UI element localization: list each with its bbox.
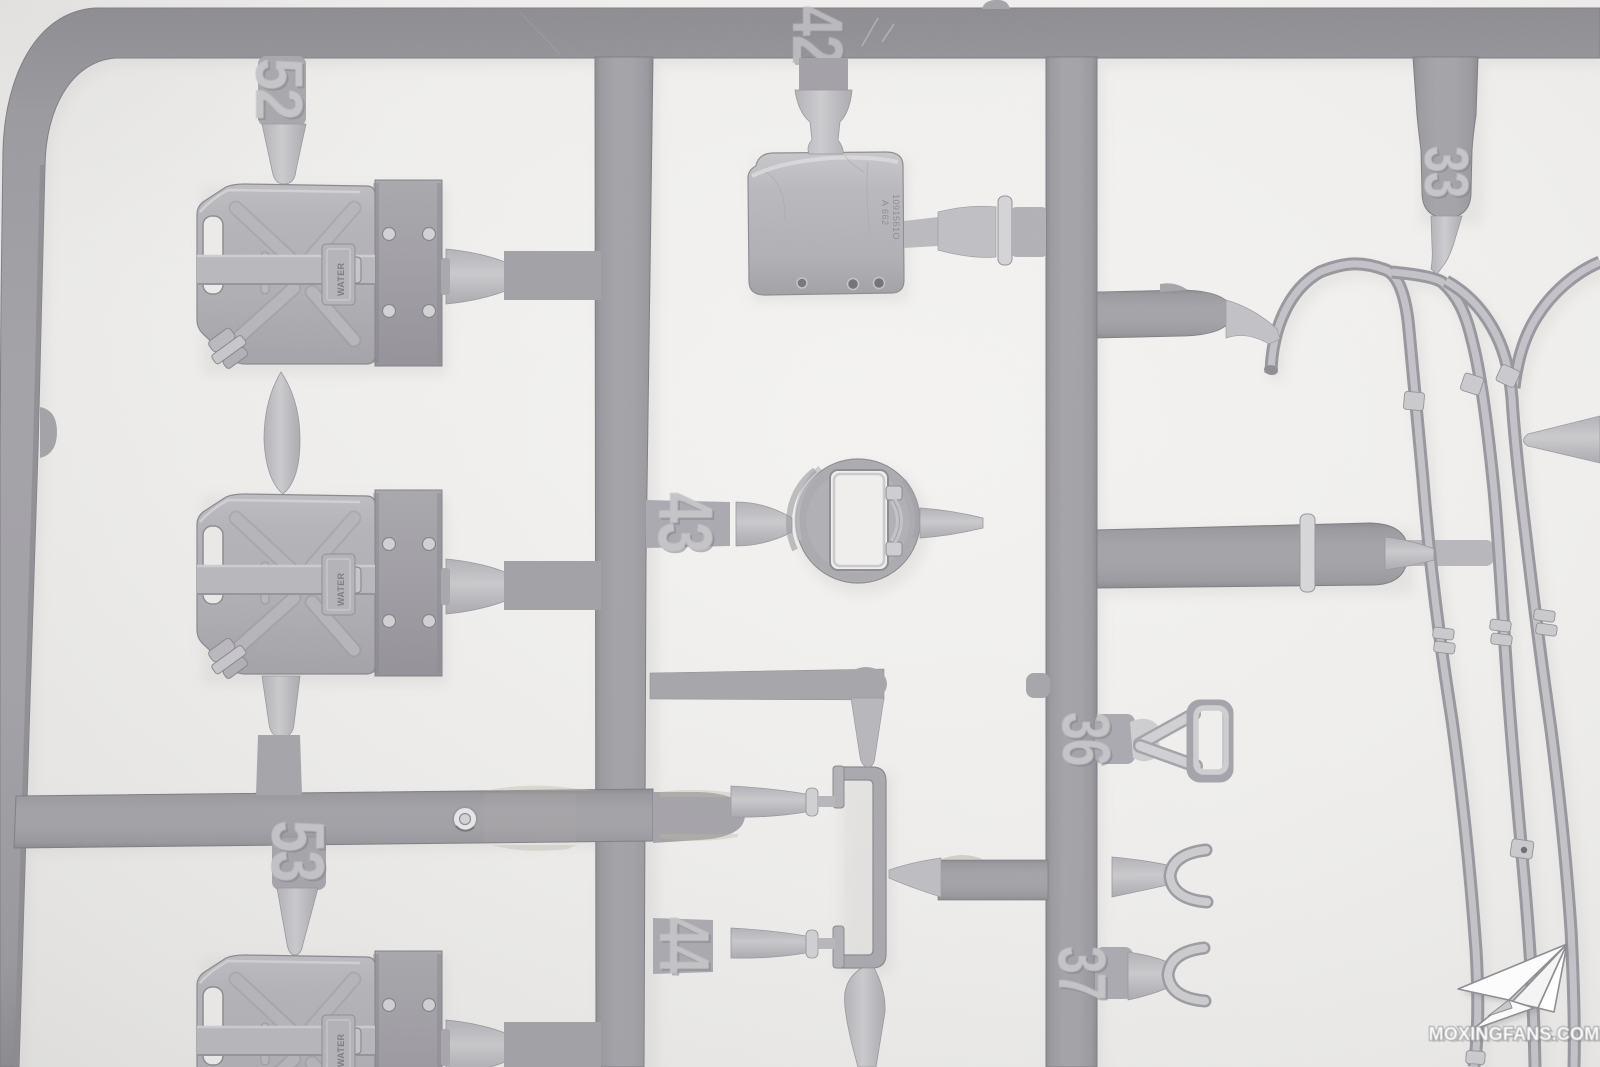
svg-text:MOXINGFANS.COM: MOXINGFANS.COM bbox=[1429, 1024, 1600, 1044]
